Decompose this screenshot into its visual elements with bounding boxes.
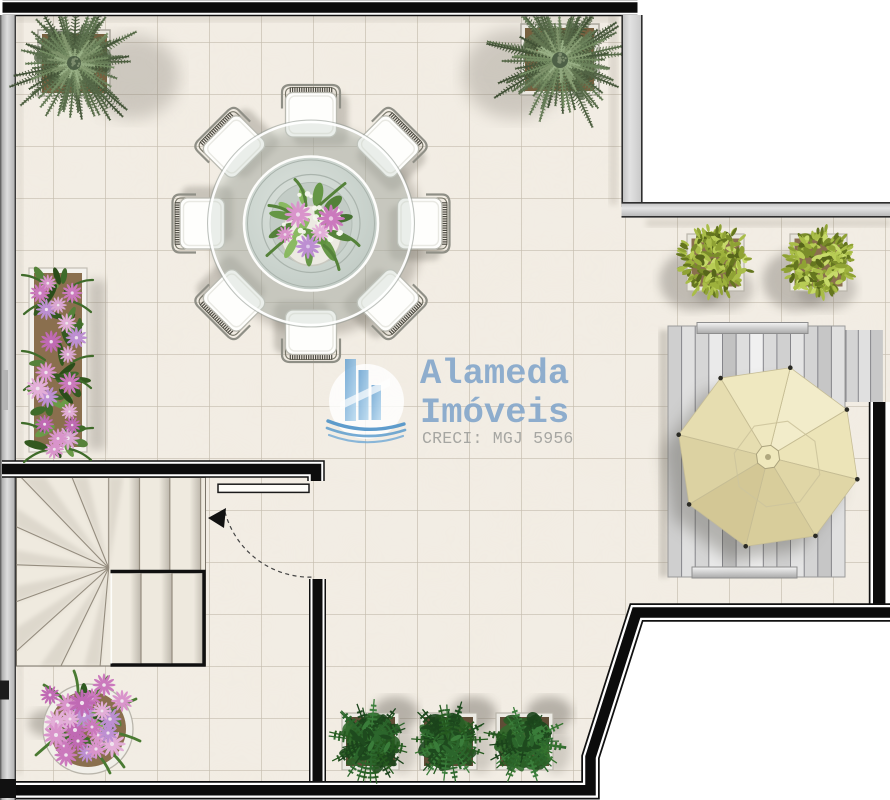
svg-text:Alameda: Alameda [420, 353, 569, 394]
svg-text:Imóveis: Imóveis [420, 392, 569, 433]
svg-text:CRECI: MGJ 5956: CRECI: MGJ 5956 [422, 429, 574, 448]
